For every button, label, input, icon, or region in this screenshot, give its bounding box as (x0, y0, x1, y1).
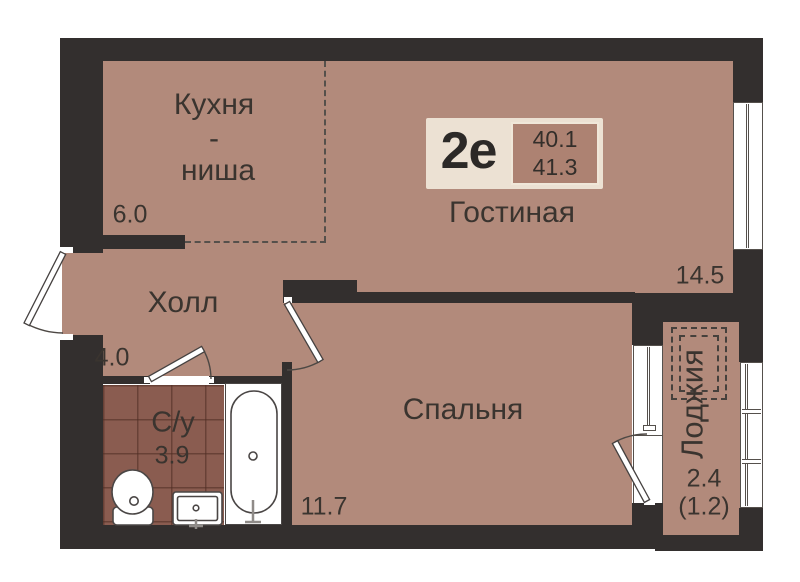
kitchen-area: 6.0 (113, 203, 148, 228)
bedroom-area: 11.7 (301, 495, 348, 520)
unit-area-top: 40.1 (533, 126, 578, 153)
kitchen-label-line1: Кухня (174, 90, 254, 120)
hall-area: 4.0 (95, 346, 130, 371)
bedroom-door (284, 302, 323, 371)
sink-icon (173, 492, 222, 529)
living-room-label: Гостиная (449, 198, 575, 228)
toilet-icon (112, 470, 153, 525)
loggia-area-secondary: (1.2) (678, 495, 729, 520)
bathroom-area: 3.9 (155, 444, 190, 469)
unit-type-label: 2е (426, 121, 511, 186)
bathroom-label: С/у (151, 409, 195, 438)
bedroom-label: Спальня (403, 395, 524, 425)
living-room-area: 14.5 (676, 264, 725, 289)
unit-area-bottom: 41.3 (533, 154, 578, 181)
unit-badge: 2е 40.1 41.3 (426, 118, 603, 189)
loggia-area: 2.4 (687, 467, 722, 492)
bathtub-icon (231, 391, 277, 523)
balcony-door (612, 434, 649, 502)
bathroom-door (149, 346, 211, 381)
entrance-door (24, 252, 66, 333)
hall-label: Холл (148, 288, 219, 318)
unit-areas-box: 40.1 41.3 (511, 122, 599, 185)
kitchen-label-line2: - (209, 124, 219, 154)
apartment-floor-plan: 2е 40.1 41.3 Кухня - ниша 6.0 Гостиная 1… (0, 0, 800, 582)
kitchen-label-line3: ниша (181, 156, 255, 186)
loggia-label: Лоджия (677, 349, 708, 459)
